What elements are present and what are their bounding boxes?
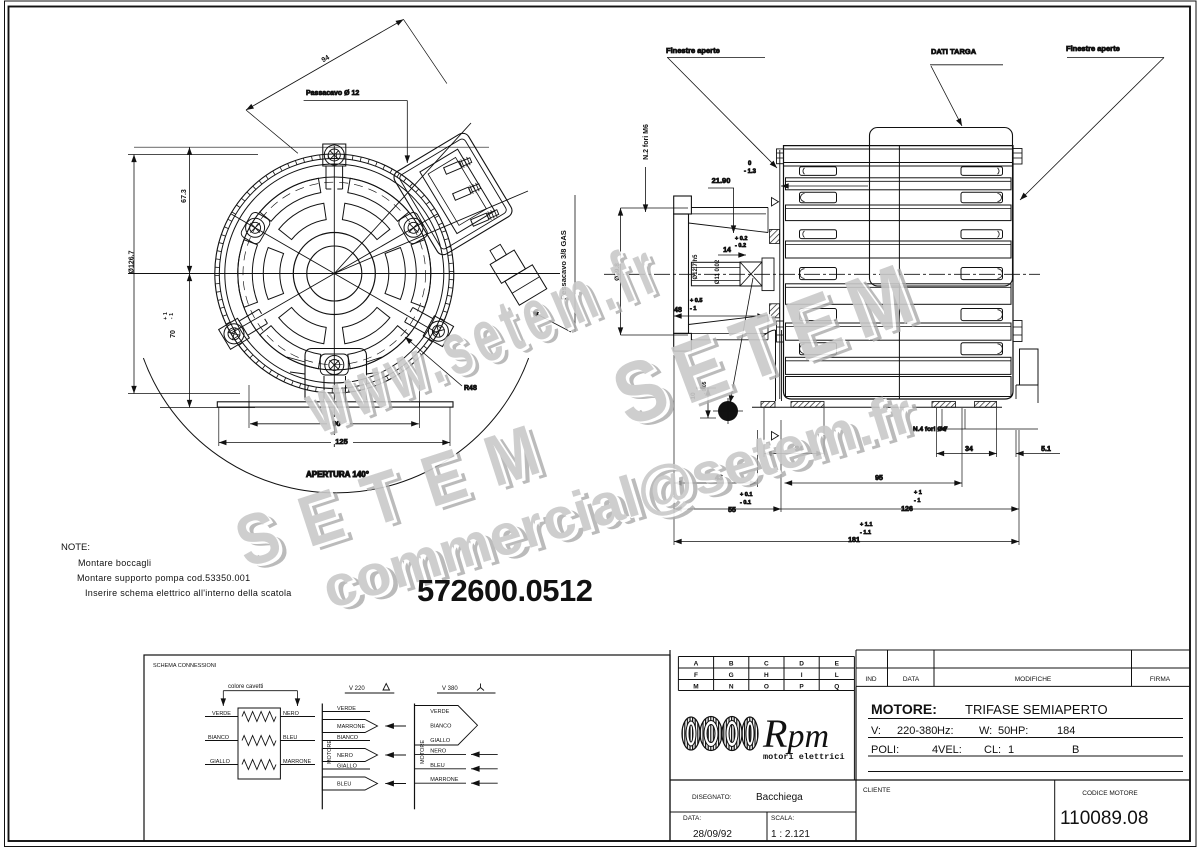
svg-text:P: P	[799, 684, 804, 691]
svg-text:O: O	[764, 684, 769, 691]
svg-text:SCALA:: SCALA:	[771, 815, 794, 822]
svg-text:Hz:: Hz:	[937, 725, 954, 737]
svg-text:220-380: 220-380	[897, 725, 937, 737]
svg-text:V:: V:	[871, 725, 881, 737]
svg-text:NERO: NERO	[430, 748, 447, 754]
svg-text:NERO: NERO	[337, 753, 354, 759]
svg-text:21.90: 21.90	[712, 176, 731, 185]
svg-text:67.3: 67.3	[181, 189, 188, 203]
svg-text:motori elettrici: motori elettrici	[763, 752, 845, 762]
svg-text:G: G	[729, 672, 734, 679]
svg-text:C: C	[764, 661, 769, 668]
svg-text:I: I	[801, 672, 803, 679]
svg-text:E: E	[835, 661, 840, 668]
svg-text:34: 34	[965, 446, 973, 453]
svg-text:GIALLO: GIALLO	[337, 764, 358, 770]
svg-text:BIANCO: BIANCO	[208, 735, 230, 741]
svg-text:N: N	[729, 684, 734, 691]
svg-text:VEL:: VEL:	[938, 744, 962, 756]
svg-text:VERDE: VERDE	[212, 711, 231, 717]
svg-text:+ 1: + 1	[914, 490, 922, 496]
svg-text:184: 184	[1057, 725, 1075, 737]
svg-text:CLIENTE: CLIENTE	[863, 787, 891, 794]
svg-text:FIRMA: FIRMA	[1150, 676, 1171, 683]
svg-text:colore cavetti: colore cavetti	[228, 684, 263, 690]
svg-text:70: 70	[170, 330, 177, 338]
svg-text:50: 50	[998, 725, 1010, 737]
svg-text:+ 0.2: + 0.2	[735, 236, 747, 242]
svg-text:F: F	[694, 672, 698, 679]
svg-text:Rpm: Rpm	[762, 711, 829, 756]
svg-text:- 1.1: - 1.1	[860, 530, 871, 536]
svg-text:55: 55	[728, 507, 736, 514]
svg-text:BLEU: BLEU	[283, 735, 297, 741]
svg-text:HP:: HP:	[1010, 725, 1028, 737]
svg-text:1 : 2.121: 1 : 2.121	[771, 829, 810, 840]
svg-text:DATA:: DATA:	[683, 815, 701, 822]
svg-text:GIALLO: GIALLO	[210, 759, 231, 765]
svg-text:- 1.3: - 1.3	[744, 169, 757, 175]
svg-text:14: 14	[723, 247, 731, 254]
svg-text:M: M	[693, 684, 698, 691]
svg-text:MOTORE: MOTORE	[420, 740, 426, 764]
svg-text:VERDE: VERDE	[337, 706, 356, 712]
svg-text:181: 181	[848, 537, 860, 544]
svg-text:Montare boccagli: Montare boccagli	[78, 558, 151, 568]
svg-text:CL:: CL:	[984, 744, 1001, 756]
svg-text:Bacchiega: Bacchiega	[756, 792, 803, 803]
svg-text:NOTE:: NOTE:	[61, 542, 90, 553]
svg-text:Q: Q	[834, 684, 839, 691]
svg-text:110089.08: 110089.08	[1060, 808, 1148, 829]
svg-text:L: L	[835, 672, 839, 679]
svg-text:DATA: DATA	[903, 676, 920, 683]
svg-text:B: B	[1072, 744, 1079, 756]
svg-text:BIANCO: BIANCO	[430, 724, 452, 730]
svg-text:Ø12.7 h5: Ø12.7 h5	[693, 254, 699, 280]
svg-text:POLI:: POLI:	[871, 744, 899, 756]
svg-text:Inserire schema elettrico a: Inserire schema elettrico all'interno de…	[85, 588, 292, 598]
svg-text:A: A	[694, 661, 699, 668]
svg-text:+ 0.5: + 0.5	[690, 298, 702, 304]
svg-text:MARRONE: MARRONE	[283, 759, 311, 765]
svg-text:VERDE: VERDE	[430, 709, 449, 715]
svg-text:5.1: 5.1	[1041, 446, 1051, 453]
svg-text:- 1: - 1	[690, 306, 696, 312]
svg-text:Montare supporto pompa cod.: Montare supporto pompa cod.53350.001	[77, 573, 250, 583]
svg-text:28/09/92: 28/09/92	[693, 829, 732, 840]
svg-text:N.2 fori M6: N.2 fori M6	[643, 124, 650, 160]
svg-text:BLEU: BLEU	[430, 763, 444, 769]
svg-text:48: 48	[674, 307, 682, 314]
svg-text:MARRONE: MARRONE	[430, 777, 458, 783]
svg-text:- 1: - 1	[914, 498, 920, 504]
svg-text:DATI TARGA: DATI TARGA	[931, 47, 977, 56]
svg-text:+ 1.1: + 1.1	[860, 522, 872, 528]
svg-text:95: 95	[875, 475, 883, 482]
svg-text:TRIFASE SEMIAPERTO: TRIFASE SEMIAPERTO	[965, 702, 1108, 717]
svg-text:MARRONE: MARRONE	[337, 724, 365, 730]
svg-text:GIALLO: GIALLO	[430, 738, 451, 744]
svg-text:Ø11 0.02: Ø11 0.02	[715, 259, 721, 284]
svg-text:B: B	[729, 661, 734, 668]
svg-text:Ø126.7: Ø126.7	[129, 250, 136, 273]
svg-text:BLEU: BLEU	[337, 782, 351, 788]
svg-text:NERO: NERO	[283, 711, 300, 717]
svg-text:- 1: - 1	[169, 313, 175, 319]
svg-text:V 380: V 380	[442, 686, 458, 692]
svg-text:SCHEMA CONNESSIONI: SCHEMA CONNESSIONI	[153, 663, 217, 669]
svg-text:Finestre aperte: Finestre aperte	[666, 46, 720, 55]
svg-text:126: 126	[901, 506, 913, 513]
svg-text:D: D	[799, 661, 804, 668]
svg-text:BIANCO: BIANCO	[337, 735, 359, 741]
svg-text:W:: W:	[979, 725, 992, 737]
svg-text:H: H	[764, 672, 769, 679]
svg-text:572600.0512: 572600.0512	[417, 573, 593, 608]
svg-text:MOTORE:: MOTORE:	[871, 701, 937, 717]
svg-text:DISEGNATO:: DISEGNATO:	[692, 794, 732, 801]
svg-text:CODICE MOTORE: CODICE MOTORE	[1082, 790, 1138, 797]
svg-text:Passacavo Ø 12: Passacavo Ø 12	[306, 90, 359, 97]
svg-text:MOTORE: MOTORE	[327, 740, 333, 764]
svg-text:V 220: V 220	[349, 686, 365, 692]
svg-text:IND: IND	[865, 676, 877, 683]
svg-text:Finestre aperte: Finestre aperte	[1066, 44, 1120, 53]
svg-text:MODIFICHE: MODIFICHE	[1015, 676, 1052, 683]
svg-text:1: 1	[1008, 744, 1014, 756]
svg-text:- 0.2: - 0.2	[735, 243, 746, 249]
